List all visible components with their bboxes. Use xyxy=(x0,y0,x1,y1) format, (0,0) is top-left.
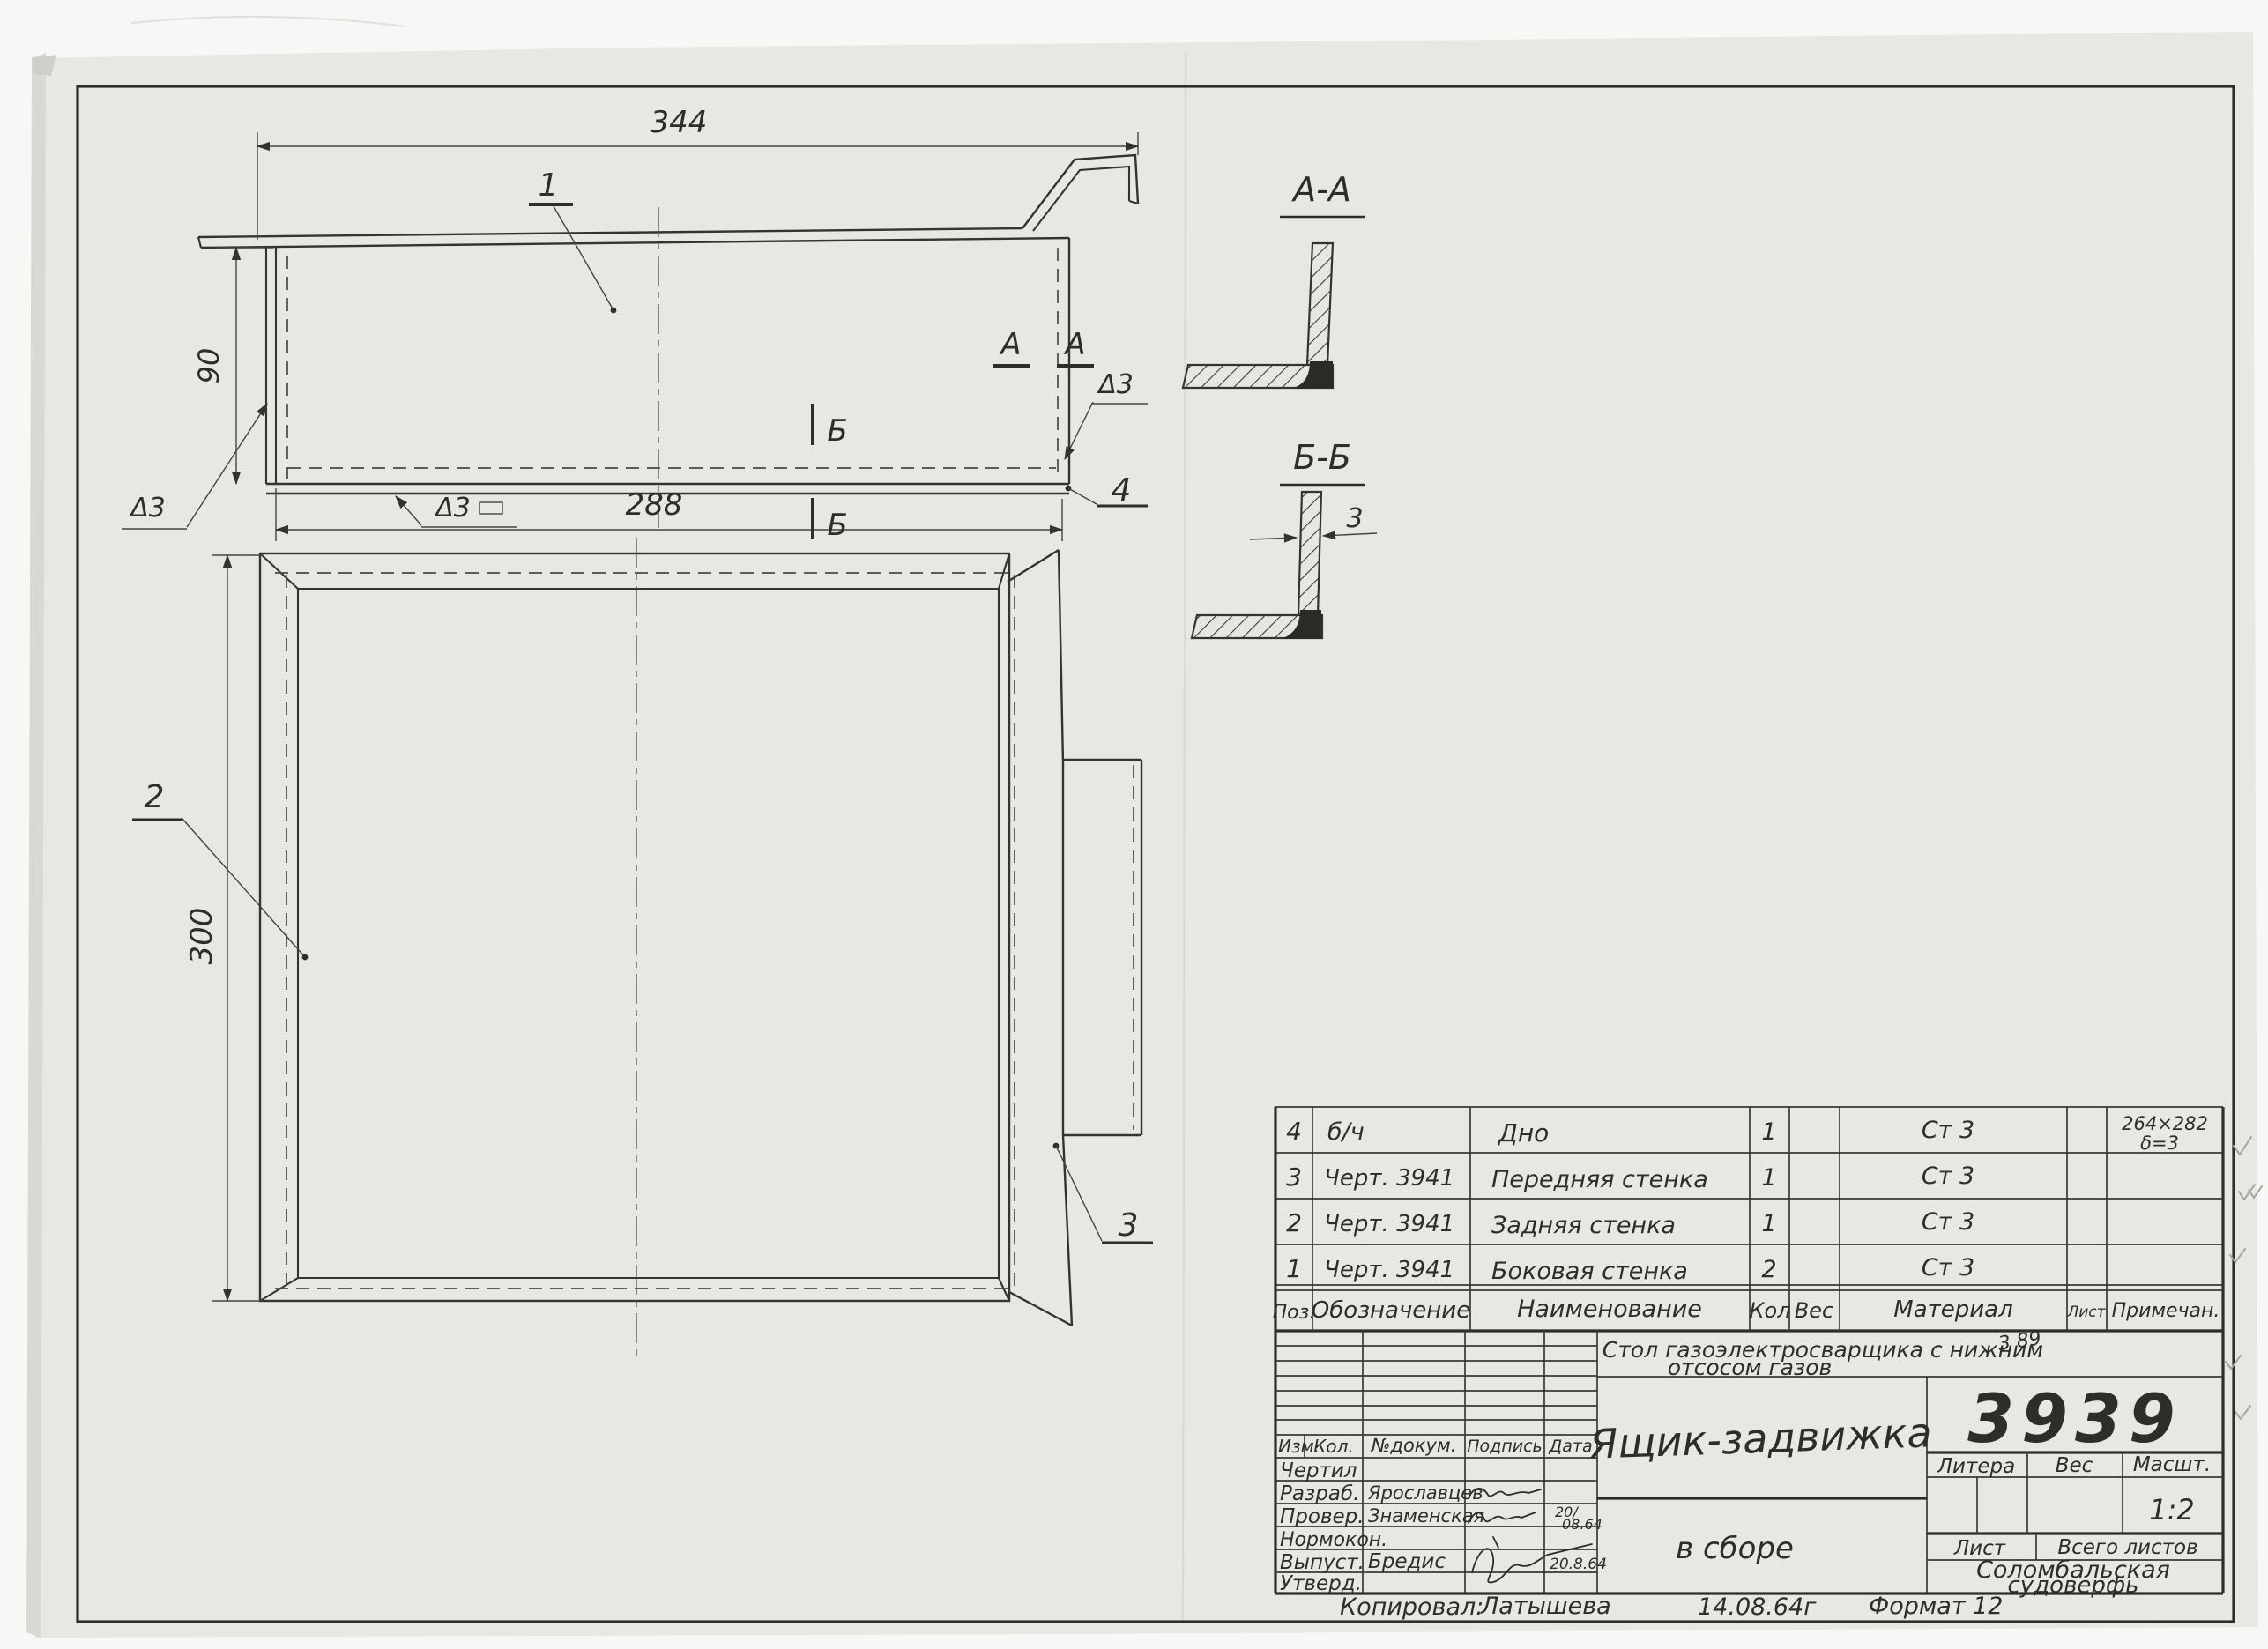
section-aa-title: А-А xyxy=(1290,170,1351,209)
assembly-note: в сборе xyxy=(1676,1531,1794,1566)
cell-pos: 3 xyxy=(1286,1162,1302,1192)
shipyard-line2: судоверфь xyxy=(2008,1572,2139,1599)
cell-pos: 4 xyxy=(1286,1117,1302,1146)
role-developed: Разраб. xyxy=(1280,1482,1359,1505)
cell-material: Ст 3 xyxy=(1922,1162,1974,1190)
cell-qty: 1 xyxy=(1761,1118,1776,1146)
header-kol: Кол. xyxy=(1313,1436,1354,1457)
header-weight: Вес xyxy=(1795,1298,1833,1323)
role-approved: Утверд. xyxy=(1280,1572,1362,1595)
header-designation: Обозначение xyxy=(1312,1297,1470,1324)
person-checked: Знаменская xyxy=(1368,1505,1484,1526)
weight-label: Вес xyxy=(2056,1454,2093,1477)
cell-note2: δ=3 xyxy=(2140,1133,2179,1154)
header-sheet: Лист xyxy=(2066,1304,2106,1321)
format-note: Формат 12 xyxy=(1869,1593,2003,1620)
dim-3-label: 3 xyxy=(1346,503,1363,534)
section-bb-title: Б-Б xyxy=(1293,438,1351,477)
callout-3-label: 3 xyxy=(1119,1207,1139,1244)
project-name-line2: отсосом газов xyxy=(1668,1355,1833,1380)
person-developed: Ярославцев xyxy=(1367,1482,1483,1504)
scale-label: Масшт. xyxy=(2133,1453,2211,1476)
section-aa-vertical-plate xyxy=(1307,243,1333,365)
role-checked: Провер. xyxy=(1280,1505,1365,1528)
callout-4-label: 4 xyxy=(1112,472,1132,509)
cell-designation: Черт. 3941 xyxy=(1324,1165,1454,1192)
section-a-letter-right: А xyxy=(1063,327,1085,362)
weld-left-label: Δ3 xyxy=(129,493,166,524)
section-a-letter-left: А xyxy=(999,327,1021,362)
header-pos: Поз. xyxy=(1273,1302,1316,1324)
header-material: Материал xyxy=(1893,1296,2012,1323)
dim-90-label: 90 xyxy=(192,348,226,384)
header-dokum: №докум. xyxy=(1371,1435,1457,1456)
cell-qty: 1 xyxy=(1761,1164,1776,1192)
header-qty: Кол xyxy=(1749,1298,1790,1323)
cell-note1: 264×282 xyxy=(2122,1113,2208,1134)
scale-value: 1:2 xyxy=(2149,1493,2195,1526)
header-podpis: Подпись xyxy=(1467,1437,1542,1456)
litera-label: Литера xyxy=(1937,1455,2016,1478)
header-note: Примечан. xyxy=(2112,1300,2220,1322)
person-released: Бредис xyxy=(1368,1550,1446,1573)
copied-label: Копировал: xyxy=(1340,1593,1483,1621)
cell-name: Задняя стенка xyxy=(1491,1212,1676,1239)
header-data: Дата xyxy=(1548,1437,1592,1456)
callout-1-label: 1 xyxy=(539,167,559,204)
dim-288-label: 288 xyxy=(626,487,683,523)
drawing-sheet-page: 344 90 288 Δ3 Δ3 Δ3 xyxy=(0,0,2268,1649)
dim-344-label: 344 xyxy=(651,105,708,140)
section-b-letter-top: Б xyxy=(827,413,847,449)
cell-name: Дно xyxy=(1497,1118,1549,1148)
cell-name: Боковая стенка xyxy=(1491,1258,1688,1285)
drawing-number: 3939 xyxy=(1967,1379,2182,1458)
role-released: Выпуст. xyxy=(1280,1551,1365,1574)
cell-material: Ст 3 xyxy=(1922,1117,1974,1144)
cell-designation: б/ч xyxy=(1327,1118,1365,1146)
copy-date: 14.08.64г xyxy=(1698,1593,1817,1621)
copied-by: Латышева xyxy=(1480,1593,1611,1620)
cell-material: Ст 3 xyxy=(1922,1254,1974,1281)
date-released: 20.8.64 xyxy=(1550,1556,1607,1573)
date-checked-bottom: 08.64 xyxy=(1562,1516,1602,1533)
weld-right-label: Δ3 xyxy=(1097,369,1134,400)
header-name: Наименование xyxy=(1517,1296,1702,1323)
cell-qty: 2 xyxy=(1761,1256,1776,1283)
role-norm: Нормокон. xyxy=(1280,1529,1387,1551)
weld-bottom-label: Δ3 xyxy=(434,493,471,524)
section-bb-vertical-plate xyxy=(1298,492,1321,615)
cell-qty: 1 xyxy=(1761,1210,1776,1237)
cell-name: Передняя стенка xyxy=(1491,1166,1708,1193)
cell-pos: 1 xyxy=(1286,1254,1302,1283)
blueprint-canvas: 344 90 288 Δ3 Δ3 Δ3 xyxy=(0,0,2268,1649)
cell-designation: Черт. 3941 xyxy=(1324,1257,1454,1283)
callout-2-label: 2 xyxy=(145,779,165,815)
cell-material: Ст 3 xyxy=(1922,1208,1974,1236)
role-drew: Чертил xyxy=(1280,1460,1357,1482)
cell-designation: Черт. 3941 xyxy=(1324,1211,1454,1237)
cell-pos: 2 xyxy=(1286,1208,1302,1237)
section-b-letter-bottom: Б xyxy=(827,508,847,543)
dim-300-label: 300 xyxy=(184,908,219,965)
